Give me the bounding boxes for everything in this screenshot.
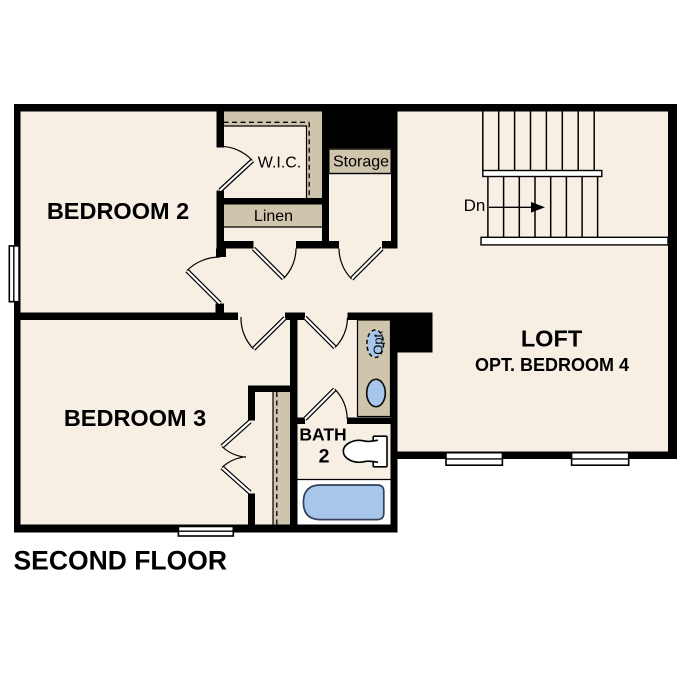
svg-text:W.I.C.: W.I.C. [258, 155, 302, 172]
svg-text:Linen: Linen [254, 208, 293, 225]
svg-text:2: 2 [319, 446, 330, 468]
svg-text:BEDROOM 2: BEDROOM 2 [47, 198, 189, 224]
svg-text:OPT. BEDROOM 4: OPT. BEDROOM 4 [475, 355, 629, 375]
svg-text:Storage: Storage [333, 154, 389, 171]
svg-text:SECOND FLOOR: SECOND FLOOR [14, 546, 227, 576]
svg-text:Dn: Dn [464, 196, 486, 215]
svg-text:BATH: BATH [299, 425, 346, 445]
svg-text:LOFT: LOFT [521, 326, 583, 352]
svg-text:BEDROOM 3: BEDROOM 3 [64, 405, 206, 431]
svg-text:Opt.: Opt. [371, 330, 386, 355]
